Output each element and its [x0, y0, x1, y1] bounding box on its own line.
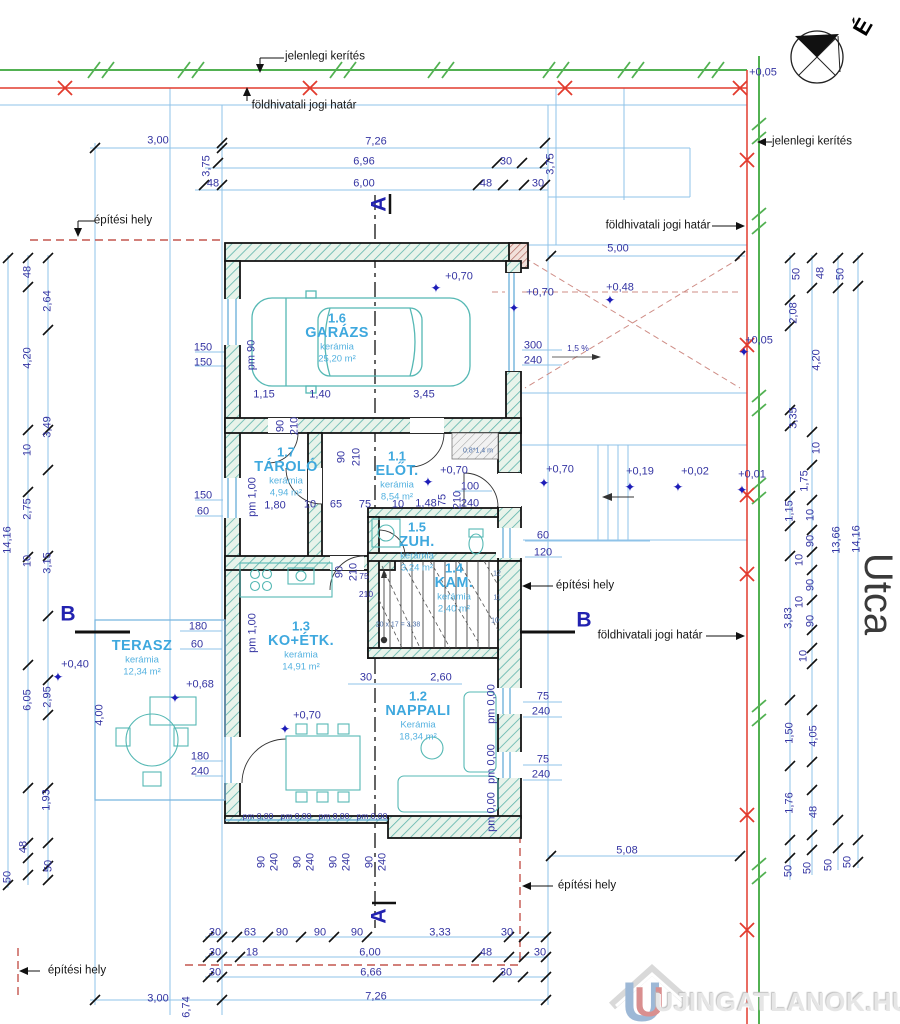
label-legal-boundary-top: földhivatali jogi határ: [252, 100, 357, 112]
room-garzs-title: GARÁZS: [305, 326, 369, 341]
dimension-label: +0,02: [681, 467, 709, 478]
dimension-label: pm 0,00: [487, 684, 498, 724]
dimension-label: ✦: [431, 282, 442, 295]
dimension-label: 50: [803, 862, 814, 874]
dimension-label: pm 0,00: [487, 792, 498, 832]
room-kam-title: KAM.: [435, 576, 474, 591]
room-garzs-area: 25,20 m²: [318, 354, 356, 364]
dimension-label: 210: [290, 417, 301, 435]
dimension-label: 12: [493, 571, 501, 578]
dimension-label: pm 0,00: [357, 812, 388, 821]
dimension-label: 300: [524, 341, 542, 352]
section-marker-a-top: A: [369, 196, 390, 211]
room-terasz-area: 12,34 m²: [123, 667, 161, 677]
dimension-label: 150: [194, 343, 212, 354]
fence-hatch-marks: [88, 62, 766, 884]
section-marker-a-bottom: A: [369, 908, 390, 923]
dimension-label: 6,96: [353, 157, 374, 168]
room-kotk-number: 1.3: [292, 620, 310, 633]
dimension-label: 48: [480, 179, 492, 190]
dimension-label: 14,16: [852, 525, 863, 553]
dimension-label: 1,15: [785, 500, 796, 521]
room-kam-area: 2,40 m²: [438, 604, 470, 614]
room-terasz-material: kerámia: [125, 655, 159, 665]
room-zuh-number: 1.5: [408, 521, 426, 534]
dimension-label: ✦: [170, 692, 181, 705]
dimension-label: +0,70: [445, 272, 473, 283]
dimension-label: 90: [806, 535, 817, 547]
dimension-label: 240: [270, 853, 281, 871]
street-name: Utca: [858, 553, 898, 635]
dimension-label: 180: [189, 622, 207, 633]
dimension-label: 10: [304, 500, 316, 511]
dimension-label: 2,64: [43, 290, 54, 311]
dimension-label: 14,16: [3, 526, 14, 554]
dimension-label: 65: [330, 500, 342, 511]
room-trol-area: 4,94 m²: [270, 488, 302, 498]
terrace-furniture: [116, 697, 196, 786]
dimension-label: 150: [194, 491, 212, 502]
dimension-label: 63: [244, 928, 256, 939]
dimension-label: 210: [352, 448, 363, 466]
dimension-label: 3,15: [43, 552, 54, 573]
dimension-label: 210: [349, 563, 360, 581]
dimension-label: 4,20: [23, 347, 34, 368]
dimension-label: 90: [335, 566, 346, 578]
dimension-label: 120: [534, 548, 552, 559]
dimension-label: 90: [329, 856, 340, 868]
dimension-label: 6,66: [360, 968, 381, 979]
dimension-label: 90: [276, 420, 287, 432]
dimension-label: 10: [795, 554, 806, 566]
room-garzs-number: 1.6: [328, 312, 346, 325]
dimension-label: 90: [337, 451, 348, 463]
watermark-text: UJINGATLANOK.HU: [655, 989, 900, 1015]
dimension-label: 60: [537, 531, 549, 542]
dimension-label: 30: [209, 968, 221, 979]
dimension-label: 3,00: [147, 136, 168, 147]
dimension-label: 30: [209, 928, 221, 939]
dimension-label: 20 x 17 = 3,38: [376, 622, 421, 629]
dimension-label: pm 0,00: [319, 812, 350, 821]
room-kotk-area: 14,91 m²: [282, 662, 320, 672]
dimension-label: 90: [365, 856, 376, 868]
label-building-site-topleft: építési hely: [94, 215, 152, 227]
dimension-label: pm 0,00: [487, 744, 498, 784]
dimension-label: 240: [524, 356, 542, 367]
dimension-label: 60: [191, 640, 203, 651]
label-building-site-bottomleft: építési hely: [48, 965, 106, 977]
dimension-label: 3,49: [43, 416, 54, 437]
dimension-label: 60: [197, 507, 209, 518]
dimension-label: 50: [824, 859, 835, 871]
dimension-label: +0,70: [440, 466, 468, 477]
room-kam-number: 1.4: [445, 562, 463, 575]
dimension-label: 75: [438, 494, 449, 506]
dimension-label: 3,35: [789, 407, 800, 428]
dimension-label: 240: [532, 707, 550, 718]
room-nappali-title: NAPPALI: [385, 704, 450, 719]
dimension-label: 3,45: [413, 390, 434, 401]
dimension-label: 1,48: [415, 499, 436, 510]
dimension-label: 150: [194, 358, 212, 369]
dimension-label: 10: [23, 444, 34, 456]
dimension-label: ✦: [539, 477, 550, 490]
room-elt-material: kerámia: [380, 480, 414, 490]
dimension-label: 2,95: [43, 686, 54, 707]
closet: [452, 433, 498, 459]
dimension-label: pm 0,00: [243, 812, 274, 821]
dimension-label: 10: [23, 555, 34, 567]
label-current-fence-top: jelenlegi kerítés: [285, 51, 365, 63]
dimension-label: 240: [191, 767, 209, 778]
dimension-label: 3,75: [546, 153, 557, 174]
compass-icon: [791, 31, 843, 83]
dimension-label: 50: [3, 871, 14, 883]
dimension-label: 1,93: [42, 789, 53, 810]
dimension-label: 90: [293, 856, 304, 868]
room-trol-title: TÁROLÓ: [254, 460, 318, 475]
room-garzs-material: kerámia: [320, 342, 354, 352]
dimension-label: 48: [207, 179, 219, 190]
dimension-label: 48: [480, 948, 492, 959]
dimension-label: 5,00: [607, 244, 628, 255]
dimension-label: +0,01: [738, 470, 766, 481]
room-nappali-material: Kerámia: [400, 720, 435, 730]
label-current-fence-right: jelenlegi kerítés: [772, 136, 852, 148]
dimension-label: ✦: [509, 302, 520, 315]
dimension-label: 48: [816, 267, 827, 279]
dimension-label: 0,8*1,4 m: [463, 448, 493, 455]
dimension-label: +0,40: [61, 660, 89, 671]
dimension-label: 240: [306, 853, 317, 871]
label-building-site-right: építési hely: [556, 580, 614, 592]
room-trol-number: 1.7: [277, 446, 295, 459]
dimension-label: 30: [209, 948, 221, 959]
dimension-label: 180: [191, 752, 209, 763]
dimension-label: ✦: [739, 346, 750, 359]
dimension-label: 48: [23, 266, 34, 278]
dimension-label: 50: [44, 860, 55, 872]
dimension-label: 3,33: [429, 928, 450, 939]
dimension-label: 7,26: [365, 137, 386, 148]
dimension-label: 90: [276, 928, 288, 939]
dimension-label: 3,00: [147, 994, 168, 1005]
dimension-label: 50: [784, 865, 795, 877]
dimension-label: 4,00: [95, 704, 106, 725]
driveway-dashed-lines: [492, 258, 740, 388]
dimension-label: 75: [359, 500, 371, 511]
room-zuh-area: 3,24 m²: [401, 563, 433, 573]
room-zuh-title: ZUH.: [399, 535, 434, 550]
dimension-label: 6,00: [353, 179, 374, 190]
dimension-label: 50: [843, 856, 854, 868]
dimension-label: 50: [792, 268, 803, 280]
dimension-label: 1,15: [253, 390, 274, 401]
dining-table: [286, 724, 360, 802]
dimension-label: 75: [537, 692, 549, 703]
section-marker-b-right: B: [576, 610, 591, 631]
room-kotk-title: KO+ÉTK.: [268, 634, 334, 649]
dimension-label: +0,70: [546, 465, 574, 476]
dimension-label: 18: [246, 948, 258, 959]
dimension-label: 1,50: [785, 722, 796, 743]
dimension-label: +0,70: [293, 711, 321, 722]
dimension-label: 240: [461, 499, 479, 510]
room-kotk-material: kerámia: [284, 650, 318, 660]
dimension-label: 90: [257, 856, 268, 868]
dimension-label: 10: [812, 442, 823, 454]
dimension-label: pm 90: [247, 340, 258, 371]
room-zuh-material: kerámia: [400, 551, 434, 561]
dimension-label: 6,05: [23, 689, 34, 710]
dimension-label: 3,75: [202, 155, 213, 176]
floor-plan-drawing: U U: [0, 0, 900, 1024]
dimension-label: 1,76: [785, 792, 796, 813]
room-elt-area: 8,54 m²: [381, 492, 413, 502]
dimension-label: 75: [537, 755, 549, 766]
dimension-label: 90: [806, 615, 817, 627]
dimension-label: 30: [500, 157, 512, 168]
dimension-label: 30: [500, 968, 512, 979]
dimension-label: 6,74: [182, 996, 193, 1017]
dimension-label: +0,05: [749, 68, 777, 79]
dimension-label: 13,66: [832, 526, 843, 554]
dimension-label: +0,68: [186, 680, 214, 691]
dimension-label: 10: [491, 618, 499, 625]
dimension-label: 90: [314, 928, 326, 939]
dimension-label: 10: [799, 650, 810, 662]
dimension-label: 240: [378, 853, 389, 871]
label-legal-boundary-mid: földhivatali jogi határ: [598, 630, 703, 642]
dimension-label: 2,08: [789, 302, 800, 323]
dimension-label: 100: [461, 482, 479, 493]
dimension-label: +0,70: [526, 288, 554, 299]
room-kam-material: kerámia: [437, 592, 471, 602]
dimension-label: 90: [351, 928, 363, 939]
dimension-label: ✦: [280, 723, 291, 736]
dimension-label: ✦: [737, 484, 748, 497]
room-nappali-area: 18,34 m²: [399, 732, 437, 742]
dimension-label: 1,5 %: [567, 344, 589, 353]
dimension-label: 48: [809, 806, 820, 818]
label-building-site-bottomright: építési hely: [558, 880, 616, 892]
room-terasz-title: TERASZ: [112, 639, 172, 654]
dimension-label: 11: [493, 595, 500, 602]
dimension-label: 210: [359, 590, 373, 599]
dimension-label: 50: [836, 268, 847, 280]
dimension-label: +0,19: [626, 467, 654, 478]
room-trol-material: kerámia: [269, 476, 303, 486]
dimension-label: ✦: [625, 481, 636, 494]
dimension-label: pm 0,00: [281, 812, 312, 821]
dimension-label: 240: [342, 853, 353, 871]
dimension-label: 10: [795, 596, 806, 608]
dimension-label: 30: [532, 179, 544, 190]
dimension-label: pm 1,00: [248, 613, 259, 653]
dimension-label: 210: [453, 491, 464, 509]
floor-plan-page: U U jelenlegi kerítésföldhivatali jogi h…: [0, 0, 900, 1024]
dimension-label: 30: [501, 928, 513, 939]
entry-steps-arrow: [552, 354, 634, 501]
dimension-label: 1,80: [264, 501, 285, 512]
dimension-label: 30: [360, 673, 372, 684]
car-icon: [252, 291, 470, 393]
dimension-label: 2,75: [23, 498, 34, 519]
label-legal-boundary-right: földhivatali jogi határ: [606, 220, 711, 232]
dimension-label: 1,40: [309, 390, 330, 401]
dimension-label: 5,08: [616, 846, 637, 857]
dimension-label: 6,00: [359, 948, 380, 959]
dimension-label: 48: [19, 841, 30, 853]
room-elt-title: ELŐT.: [375, 464, 418, 479]
dimension-label: 10: [806, 509, 817, 521]
dimension-label: pm 1,00: [248, 477, 259, 517]
dimension-label: 1,75: [800, 470, 811, 491]
dimension-label: 4,05: [809, 725, 820, 746]
dimension-label: 240: [532, 770, 550, 781]
room-elt-number: 1.1: [388, 450, 406, 463]
dimension-label: 3,83: [784, 607, 795, 628]
section-marker-b-left: B: [60, 604, 75, 625]
dimension-label: 2,60: [430, 673, 451, 684]
dimension-label: ✦: [605, 294, 616, 307]
dimension-label: 90: [806, 579, 817, 591]
dimension-label: 30: [534, 948, 546, 959]
dimension-label: ✦: [673, 481, 684, 494]
dimension-label: ✦: [53, 671, 64, 684]
dimension-label: 75: [359, 572, 368, 581]
dimension-label: 4,20: [812, 349, 823, 370]
room-nappali-number: 1.2: [409, 690, 427, 703]
dimension-label: 7,26: [365, 992, 386, 1003]
dimension-label: ✦: [423, 476, 434, 489]
